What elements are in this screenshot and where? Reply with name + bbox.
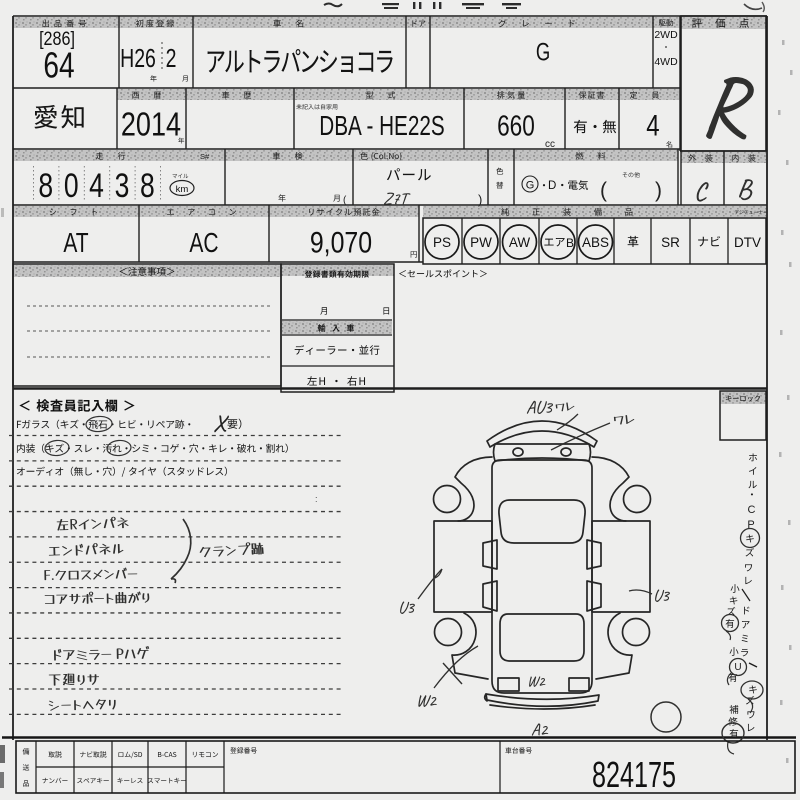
svg-text:C: C <box>748 504 756 516</box>
svg-text:660: 660 <box>497 109 535 142</box>
svg-text:ABS: ABS <box>582 235 609 250</box>
svg-text:DTV: DTV <box>734 235 761 250</box>
svg-text:G: G <box>536 38 550 66</box>
svg-text:D: D <box>548 180 556 192</box>
svg-text:): ) <box>655 179 662 202</box>
svg-text:H26: H26 <box>120 43 156 72</box>
svg-text:PW: PW <box>470 235 492 250</box>
svg-text:PS: PS <box>433 235 451 250</box>
svg-text:8: 8 <box>140 167 155 205</box>
svg-text:2WD: 2WD <box>654 29 678 41</box>
svg-text:8: 8 <box>38 167 53 205</box>
svg-text:AT: AT <box>63 228 88 259</box>
svg-text:9,070: 9,070 <box>310 225 372 259</box>
svg-text:4: 4 <box>89 167 104 205</box>
svg-text:824175: 824175 <box>592 755 676 796</box>
svg-text:2: 2 <box>166 43 177 72</box>
svg-text:(: ( <box>600 179 607 202</box>
svg-text:DBA - HE22S: DBA - HE22S <box>319 111 445 142</box>
svg-text:4WD: 4WD <box>654 56 678 68</box>
svg-text:cc: cc <box>545 139 555 150</box>
svg-text:): ) <box>478 192 482 207</box>
svg-text:3: 3 <box>115 167 130 205</box>
svg-text:G: G <box>526 180 535 192</box>
svg-text:0: 0 <box>64 167 79 205</box>
svg-text:SR: SR <box>661 235 680 250</box>
svg-text::: : <box>315 494 318 504</box>
svg-text:S#: S# <box>200 152 210 161</box>
svg-text:64: 64 <box>43 45 74 85</box>
svg-text:B: B <box>566 236 574 250</box>
svg-text:AC: AC <box>189 228 218 259</box>
svg-text:U: U <box>734 662 741 673</box>
svg-text:km: km <box>176 184 189 195</box>
svg-text:AW: AW <box>509 235 531 250</box>
svg-text:2014: 2014 <box>121 107 181 143</box>
svg-text:4: 4 <box>646 108 659 142</box>
